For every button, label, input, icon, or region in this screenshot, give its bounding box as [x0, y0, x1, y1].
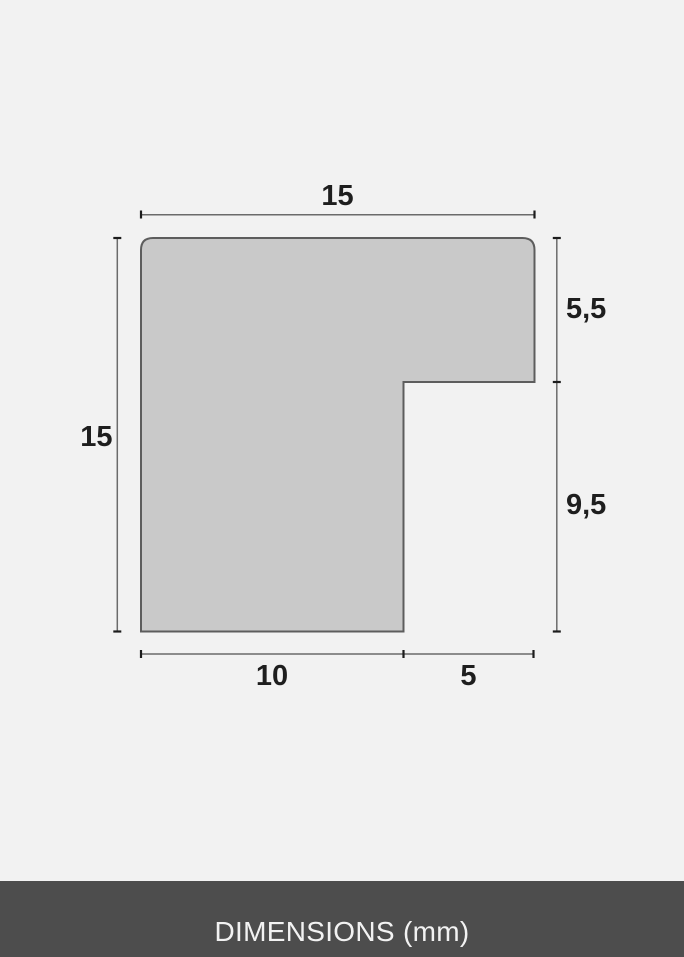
svg-text:15: 15 — [80, 421, 112, 453]
svg-text:DIMENSIONS (mm): DIMENSIONS (mm) — [215, 916, 470, 947]
svg-text:10: 10 — [256, 660, 288, 692]
svg-text:5,5: 5,5 — [566, 293, 606, 325]
svg-text:15: 15 — [321, 180, 353, 212]
svg-text:9,5: 9,5 — [566, 489, 606, 521]
svg-text:5: 5 — [460, 660, 476, 692]
